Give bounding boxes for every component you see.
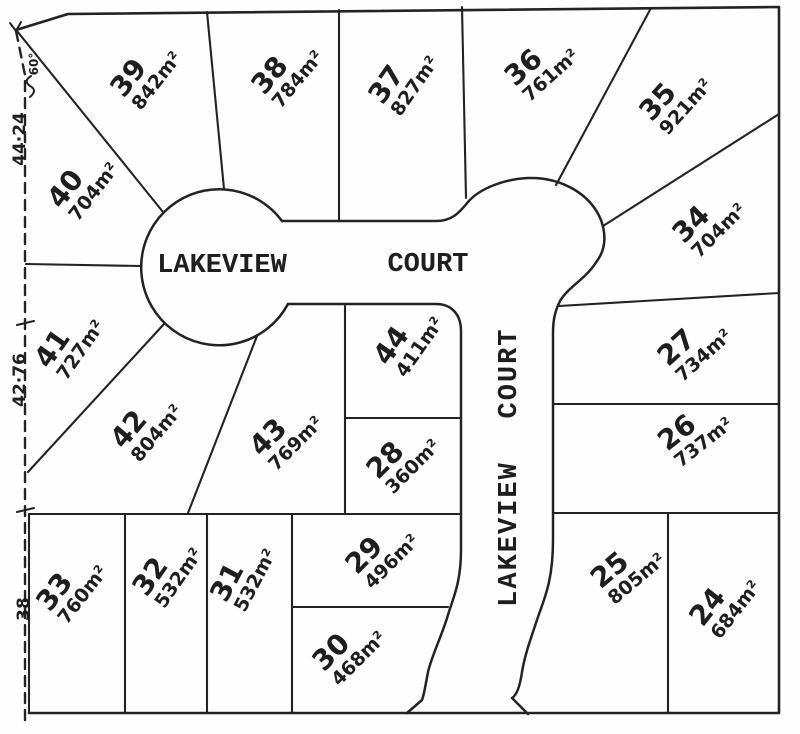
west-dimension-upper: 44·24 [10, 112, 30, 166]
lot-28-label: 28 360m² [359, 414, 444, 499]
lot-37-label: 37 827m² [361, 35, 443, 121]
lot-39-label: 39 842m² [103, 29, 186, 115]
corner-angle-label: 60° [27, 53, 41, 76]
lot-32-label: 32 532m² [125, 527, 207, 613]
lot-33-label: 33 760m² [29, 543, 112, 629]
west-boundary-squiggle-icon [27, 76, 34, 97]
lot-42-label: 42 804m² [103, 381, 187, 467]
plan-drawing: LAKEVIEW COURT COURT LAKEVIEW 60° 44·24 … [0, 0, 800, 734]
lot-25-label: 25 805m² [584, 526, 670, 610]
lot-38-label: 38 784m² [244, 27, 328, 113]
lot-40-label: 40 704m² [40, 140, 123, 226]
lot-24-label: 24 684m² [682, 558, 765, 644]
street-name-lakeview-vertical: LAKEVIEW [495, 461, 525, 607]
west-dimension-middle: 42·76 [10, 353, 30, 407]
lot-35-label: 35 921m² [632, 54, 716, 140]
street-name-court-horizontal: COURT [387, 250, 468, 280]
lot-26-label: 26 737m² [651, 389, 737, 472]
lot-30-label: 30 468m² [305, 606, 390, 691]
lot-34-label: 34 704m² [665, 178, 750, 263]
lot-43-label: 43 769m² [242, 391, 327, 476]
subdivision-plan-map: LAKEVIEW COURT COURT LAKEVIEW 60° 44·24 … [0, 0, 800, 734]
street-name-court-vertical: COURT [495, 327, 525, 418]
street-name-lakeview-horizontal: LAKEVIEW [157, 251, 287, 281]
lot-44-label: 44 411m² [366, 296, 448, 382]
lot-36-label: 36 761m² [498, 22, 584, 106]
lot-27-label: 27 734m² [651, 302, 737, 386]
lot-41-label: 41 727m² [27, 299, 109, 385]
west-dimension-lower: 38 [14, 597, 34, 621]
lot-31-label: 31 532m² [203, 531, 281, 616]
lot-29-label: 29 496m² [338, 509, 423, 594]
